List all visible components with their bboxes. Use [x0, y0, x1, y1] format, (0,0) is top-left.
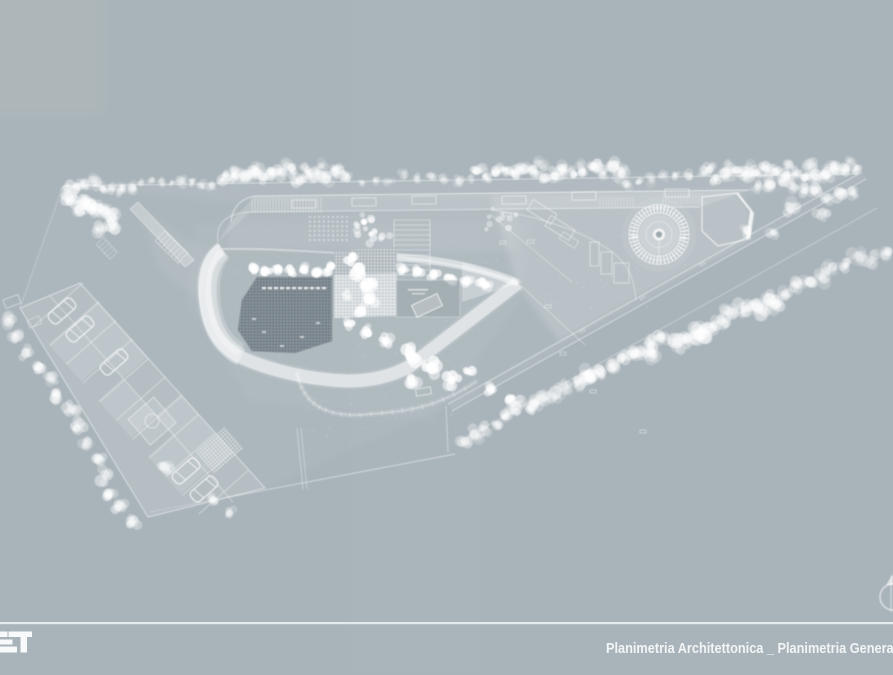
- svg-text:Planimetria Architettonica _ P: Planimetria Architettonica _ Planimetria…: [606, 639, 893, 656]
